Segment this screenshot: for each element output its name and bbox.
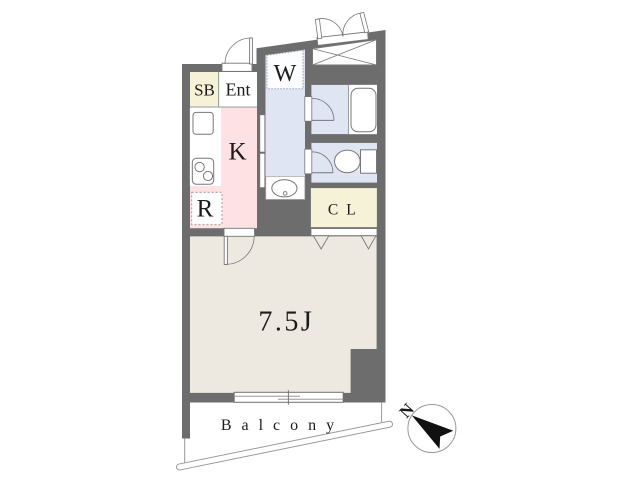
svg-text:K: K: [228, 139, 246, 166]
svg-text:7.5J: 7.5J: [258, 307, 314, 338]
svg-text:W: W: [274, 61, 297, 87]
svg-text:Balcony: Balcony: [221, 417, 344, 434]
svg-text:SB: SB: [194, 81, 215, 100]
svg-text:R: R: [197, 196, 214, 223]
svg-text:Ent: Ent: [226, 80, 251, 100]
svg-text:CL: CL: [328, 201, 364, 218]
